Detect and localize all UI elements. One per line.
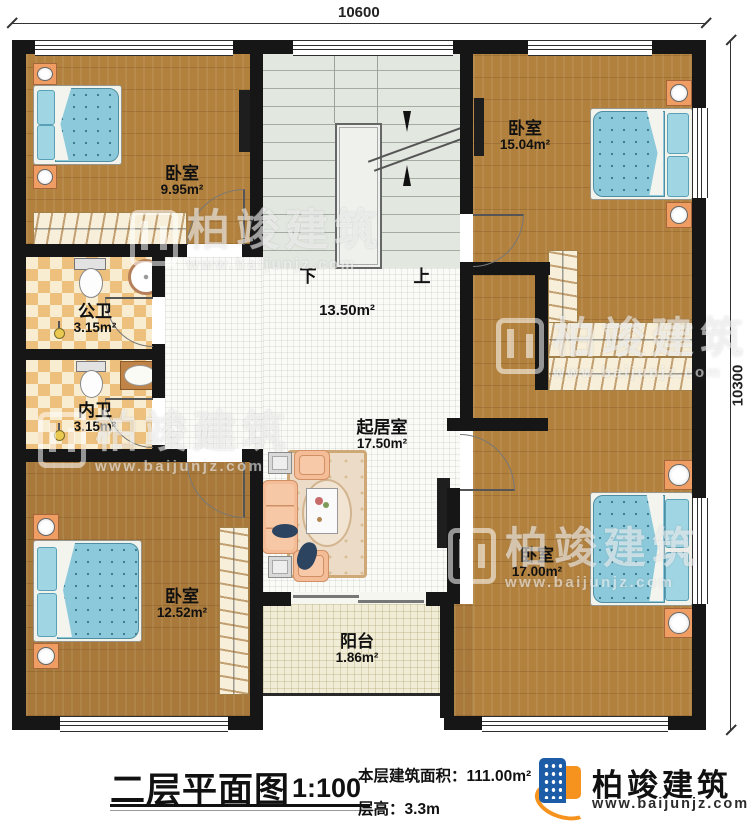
room-name: 卧室	[512, 547, 562, 565]
light-fixture-icon	[54, 430, 65, 441]
floor-area-value: 111.00m²	[467, 768, 532, 785]
nightstand	[666, 80, 692, 106]
flower-decoration	[323, 502, 329, 508]
wall	[242, 244, 263, 257]
pillow	[37, 593, 57, 637]
light-fixture-icon	[58, 423, 60, 430]
wall	[447, 418, 548, 431]
lamp-icon	[668, 464, 690, 486]
room-label-public-bath: 公卫 3.15m²	[74, 303, 117, 335]
room-area: 3.15m²	[74, 420, 117, 434]
pillow	[665, 499, 689, 548]
coffee-table	[306, 488, 338, 534]
dimension-tick	[726, 724, 737, 735]
brand-logo-icon	[537, 756, 591, 814]
pillow	[667, 113, 689, 154]
window	[482, 716, 668, 732]
stair-arrow-down-icon	[403, 111, 411, 132]
lamp-icon	[670, 84, 688, 102]
floor-bedroom-bottomright-strip	[454, 604, 473, 716]
title-underline-thin	[110, 810, 376, 811]
lamp-icon	[670, 206, 688, 224]
wardrobe	[548, 322, 694, 357]
room-label-bedroom-bottomright: 卧室 17.00m²	[512, 547, 562, 579]
flower-decoration	[317, 517, 322, 522]
balcony-railing	[263, 693, 440, 696]
floor-area-line: 本层建筑面积：111.00m²	[358, 764, 531, 786]
lamp-icon	[668, 612, 690, 634]
stair-guide-line	[334, 53, 335, 123]
pillow	[665, 552, 689, 601]
dimension-tick	[726, 34, 737, 45]
wall	[12, 449, 187, 462]
stairwell	[263, 53, 460, 268]
room-label-private-bath: 内卫 3.15m²	[74, 402, 117, 434]
sliding-door-panel	[293, 595, 359, 598]
floor-height-value: 3.3m	[405, 801, 440, 818]
side-table-top	[272, 560, 288, 574]
wall	[447, 488, 460, 604]
stair-break-line	[368, 125, 466, 162]
side-table-top	[272, 456, 288, 470]
room-area: 17.00m²	[512, 565, 562, 579]
logo-windows	[543, 762, 562, 799]
toilet	[80, 370, 103, 398]
side-table	[268, 452, 292, 474]
bed	[590, 108, 693, 200]
lamp-icon	[37, 169, 53, 185]
tv	[239, 90, 250, 152]
lamp-icon	[37, 647, 55, 665]
wall	[535, 275, 548, 390]
side-table	[268, 556, 292, 578]
room-label-bedroom-topleft: 卧室 9.95m²	[161, 165, 204, 197]
window	[293, 40, 453, 56]
wall	[250, 54, 263, 257]
room-name: 公卫	[74, 303, 117, 321]
room-label-livingroom: 起居室 17.50m²	[357, 419, 408, 451]
lamp-icon	[37, 518, 55, 536]
floor-height-label: 层高：	[358, 801, 405, 818]
window	[60, 716, 228, 732]
nightstand	[33, 643, 59, 669]
wardrobe	[548, 357, 694, 391]
lamp-icon	[37, 67, 53, 81]
room-name: 卧室	[500, 120, 550, 138]
tv	[474, 98, 484, 156]
armchair	[294, 450, 330, 480]
bed	[590, 492, 693, 606]
floor-corridor	[165, 257, 263, 449]
window	[35, 40, 233, 56]
floor-area-label: 本层建筑面积：	[358, 768, 467, 785]
sliding-door-panel	[358, 600, 424, 603]
light-fixture-icon	[58, 321, 60, 328]
light-fixture-icon	[54, 328, 65, 339]
logo-building	[539, 758, 566, 803]
toilet	[79, 268, 103, 298]
bed	[33, 540, 142, 642]
room-area: 3.15m²	[74, 321, 117, 335]
room-label-bedroom-topright: 卧室 15.04m²	[500, 120, 550, 152]
room-area: 12.52m²	[157, 606, 207, 620]
room-name: 起居室	[357, 419, 408, 437]
brand-website: www.baijunjz.com	[592, 796, 749, 812]
wall	[12, 349, 165, 360]
stair-down-label: 下	[300, 262, 317, 287]
nightstand	[664, 608, 694, 638]
stair-up-label: 上	[414, 262, 431, 287]
stair-landing	[335, 123, 382, 269]
room-name: 卧室	[157, 588, 207, 606]
cushion	[299, 455, 325, 475]
wall	[440, 592, 454, 718]
wardrobe	[548, 250, 578, 324]
dimension-top-value: 10600	[338, 4, 380, 21]
stair-guide-line	[377, 53, 378, 123]
floor-height-line: 层高：3.3m	[358, 797, 440, 819]
sofa	[262, 480, 298, 554]
stair-arrow-up-icon	[403, 165, 411, 186]
room-label-hall: 13.50m²	[319, 303, 375, 319]
wardrobe	[33, 212, 187, 245]
floor-hall	[263, 268, 460, 430]
nightstand	[666, 202, 692, 228]
window	[692, 108, 708, 198]
logo-building-accent	[566, 766, 581, 799]
wall	[460, 275, 473, 418]
title-underline	[110, 804, 370, 807]
nightstand	[33, 165, 57, 189]
nightstand	[33, 514, 59, 540]
pillow	[37, 90, 55, 125]
room-name: 阳台	[336, 633, 379, 651]
window	[528, 40, 652, 56]
room-label-balcony: 阳台 1.86m²	[336, 633, 379, 665]
room-area: 1.86m²	[336, 651, 379, 665]
pillow	[37, 547, 57, 591]
room-area: 17.50m²	[357, 437, 408, 451]
dimension-line-top	[12, 23, 706, 24]
flower-decoration	[315, 497, 323, 505]
wardrobe	[219, 527, 249, 695]
wall	[12, 40, 26, 730]
pillow	[37, 125, 55, 160]
plan-scale: 1:100	[292, 773, 361, 804]
nightstand	[664, 460, 694, 490]
wall	[263, 592, 291, 606]
bed	[33, 85, 122, 165]
room-area: 13.50m²	[319, 303, 375, 319]
floorplan-canvas: 10600 10300 下 上	[0, 0, 750, 825]
dimension-right-value: 10300	[730, 346, 747, 426]
room-name: 卧室	[161, 165, 204, 183]
room-label-bedroom-bottomleft: 卧室 12.52m²	[157, 588, 207, 620]
person-figure	[272, 524, 298, 538]
window	[692, 498, 708, 604]
sofa-cushions	[266, 484, 294, 550]
room-name: 内卫	[74, 402, 117, 420]
wall	[250, 449, 263, 730]
room-area: 9.95m²	[161, 183, 204, 197]
wall	[460, 54, 473, 214]
pillow	[667, 156, 689, 197]
wall	[152, 244, 165, 297]
room-area: 15.04m²	[500, 138, 550, 152]
nightstand	[33, 63, 57, 85]
